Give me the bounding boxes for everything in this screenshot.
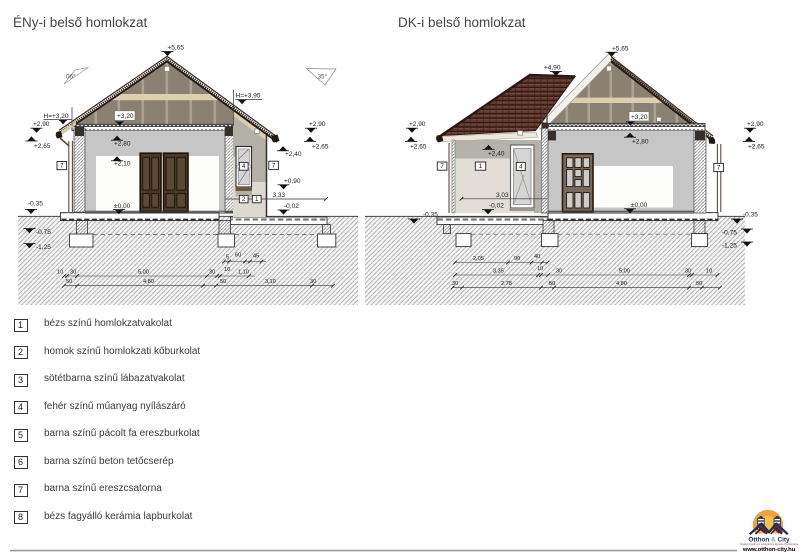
svg-text:+2,10: +2,10 bbox=[114, 160, 131, 167]
svg-text:±0,00: ±0,00 bbox=[114, 203, 131, 210]
svg-text:35°: 35° bbox=[318, 73, 328, 81]
svg-text:10: 10 bbox=[224, 267, 230, 273]
svg-text:+2,80: +2,80 bbox=[114, 140, 131, 147]
svg-text:4: 4 bbox=[519, 163, 523, 170]
svg-text:50: 50 bbox=[696, 281, 702, 287]
svg-text:1: 1 bbox=[479, 163, 483, 170]
svg-text:7: 7 bbox=[440, 163, 444, 170]
svg-text:30: 30 bbox=[685, 268, 691, 274]
svg-text:-0,75: -0,75 bbox=[36, 229, 51, 236]
svg-text:+5,65: +5,65 bbox=[168, 45, 185, 52]
svg-text:H=+3,95: H=+3,95 bbox=[236, 93, 261, 100]
svg-text:5,00: 5,00 bbox=[619, 268, 630, 274]
svg-text:-0,35: -0,35 bbox=[28, 200, 43, 207]
svg-text:30: 30 bbox=[556, 268, 562, 274]
svg-text:3,10: 3,10 bbox=[265, 279, 276, 285]
svg-text:-0,02: -0,02 bbox=[284, 203, 299, 210]
svg-text:1,10: 1,10 bbox=[238, 270, 249, 276]
svg-text:+0,90: +0,90 bbox=[284, 178, 301, 185]
svg-text:+3,20: +3,20 bbox=[631, 114, 648, 121]
svg-text:45: 45 bbox=[253, 254, 259, 260]
svg-text:06°: 06° bbox=[66, 73, 76, 81]
svg-text:+2,90: +2,90 bbox=[309, 121, 326, 128]
svg-text:3,33: 3,33 bbox=[273, 192, 286, 199]
svg-text:+2,40: +2,40 bbox=[488, 151, 505, 158]
svg-text:-0,02: -0,02 bbox=[489, 203, 504, 210]
svg-text:7: 7 bbox=[717, 165, 721, 172]
svg-text:+2,65: +2,65 bbox=[410, 143, 427, 150]
svg-text:5: 5 bbox=[226, 255, 229, 261]
svg-text:-1,25: -1,25 bbox=[722, 242, 737, 249]
svg-text:10: 10 bbox=[706, 268, 712, 274]
svg-text:5,00: 5,00 bbox=[138, 270, 149, 276]
svg-text:-1,25: -1,25 bbox=[36, 244, 51, 251]
svg-text:50: 50 bbox=[66, 279, 72, 285]
svg-text:1: 1 bbox=[255, 196, 259, 203]
svg-text:+2,65: +2,65 bbox=[34, 143, 51, 150]
svg-text:30: 30 bbox=[209, 270, 215, 276]
svg-text:+2,90: +2,90 bbox=[747, 121, 764, 128]
svg-text:-0,75: -0,75 bbox=[722, 229, 737, 236]
svg-text:+4,90: +4,90 bbox=[544, 65, 561, 72]
svg-text:30: 30 bbox=[70, 270, 76, 276]
svg-text:4,80: 4,80 bbox=[143, 279, 154, 285]
svg-text:30: 30 bbox=[452, 281, 458, 287]
svg-text:+2,90: +2,90 bbox=[33, 121, 50, 128]
svg-text:10: 10 bbox=[537, 266, 543, 272]
svg-text:40: 40 bbox=[534, 254, 540, 260]
svg-text:2,05: 2,05 bbox=[473, 256, 484, 262]
svg-text:+2,65: +2,65 bbox=[748, 143, 765, 150]
svg-text:60: 60 bbox=[235, 253, 241, 259]
svg-text:30: 30 bbox=[310, 279, 316, 285]
svg-text:10: 10 bbox=[57, 270, 63, 276]
svg-text:4: 4 bbox=[242, 163, 246, 170]
svg-text:7: 7 bbox=[272, 162, 276, 169]
svg-text:+2,80: +2,80 bbox=[632, 139, 649, 146]
svg-text:2,78: 2,78 bbox=[501, 281, 512, 287]
svg-text:4,80: 4,80 bbox=[616, 281, 627, 287]
svg-text:50: 50 bbox=[220, 279, 226, 285]
svg-text:50: 50 bbox=[549, 281, 555, 287]
svg-text:+3,20: +3,20 bbox=[117, 113, 134, 120]
svg-text:90: 90 bbox=[514, 256, 520, 262]
svg-text:3,35: 3,35 bbox=[493, 268, 504, 274]
svg-text:+2,90: +2,90 bbox=[409, 121, 426, 128]
svg-text:-0,35: -0,35 bbox=[743, 212, 758, 219]
svg-text:2: 2 bbox=[242, 196, 246, 203]
svg-text:www.otthon-city.hu: www.otthon-city.hu bbox=[742, 547, 796, 553]
svg-text:7: 7 bbox=[60, 163, 64, 170]
svg-text:H=+3,20: H=+3,20 bbox=[44, 113, 69, 120]
svg-text:-0,35: -0,35 bbox=[423, 212, 438, 219]
svg-text:+5,65: +5,65 bbox=[612, 46, 629, 53]
svg-text:3,03: 3,03 bbox=[496, 192, 509, 199]
svg-text:+2,40: +2,40 bbox=[285, 151, 302, 158]
svg-text:±0,00: ±0,00 bbox=[631, 202, 648, 209]
svg-text:+2,65: +2,65 bbox=[312, 144, 329, 151]
